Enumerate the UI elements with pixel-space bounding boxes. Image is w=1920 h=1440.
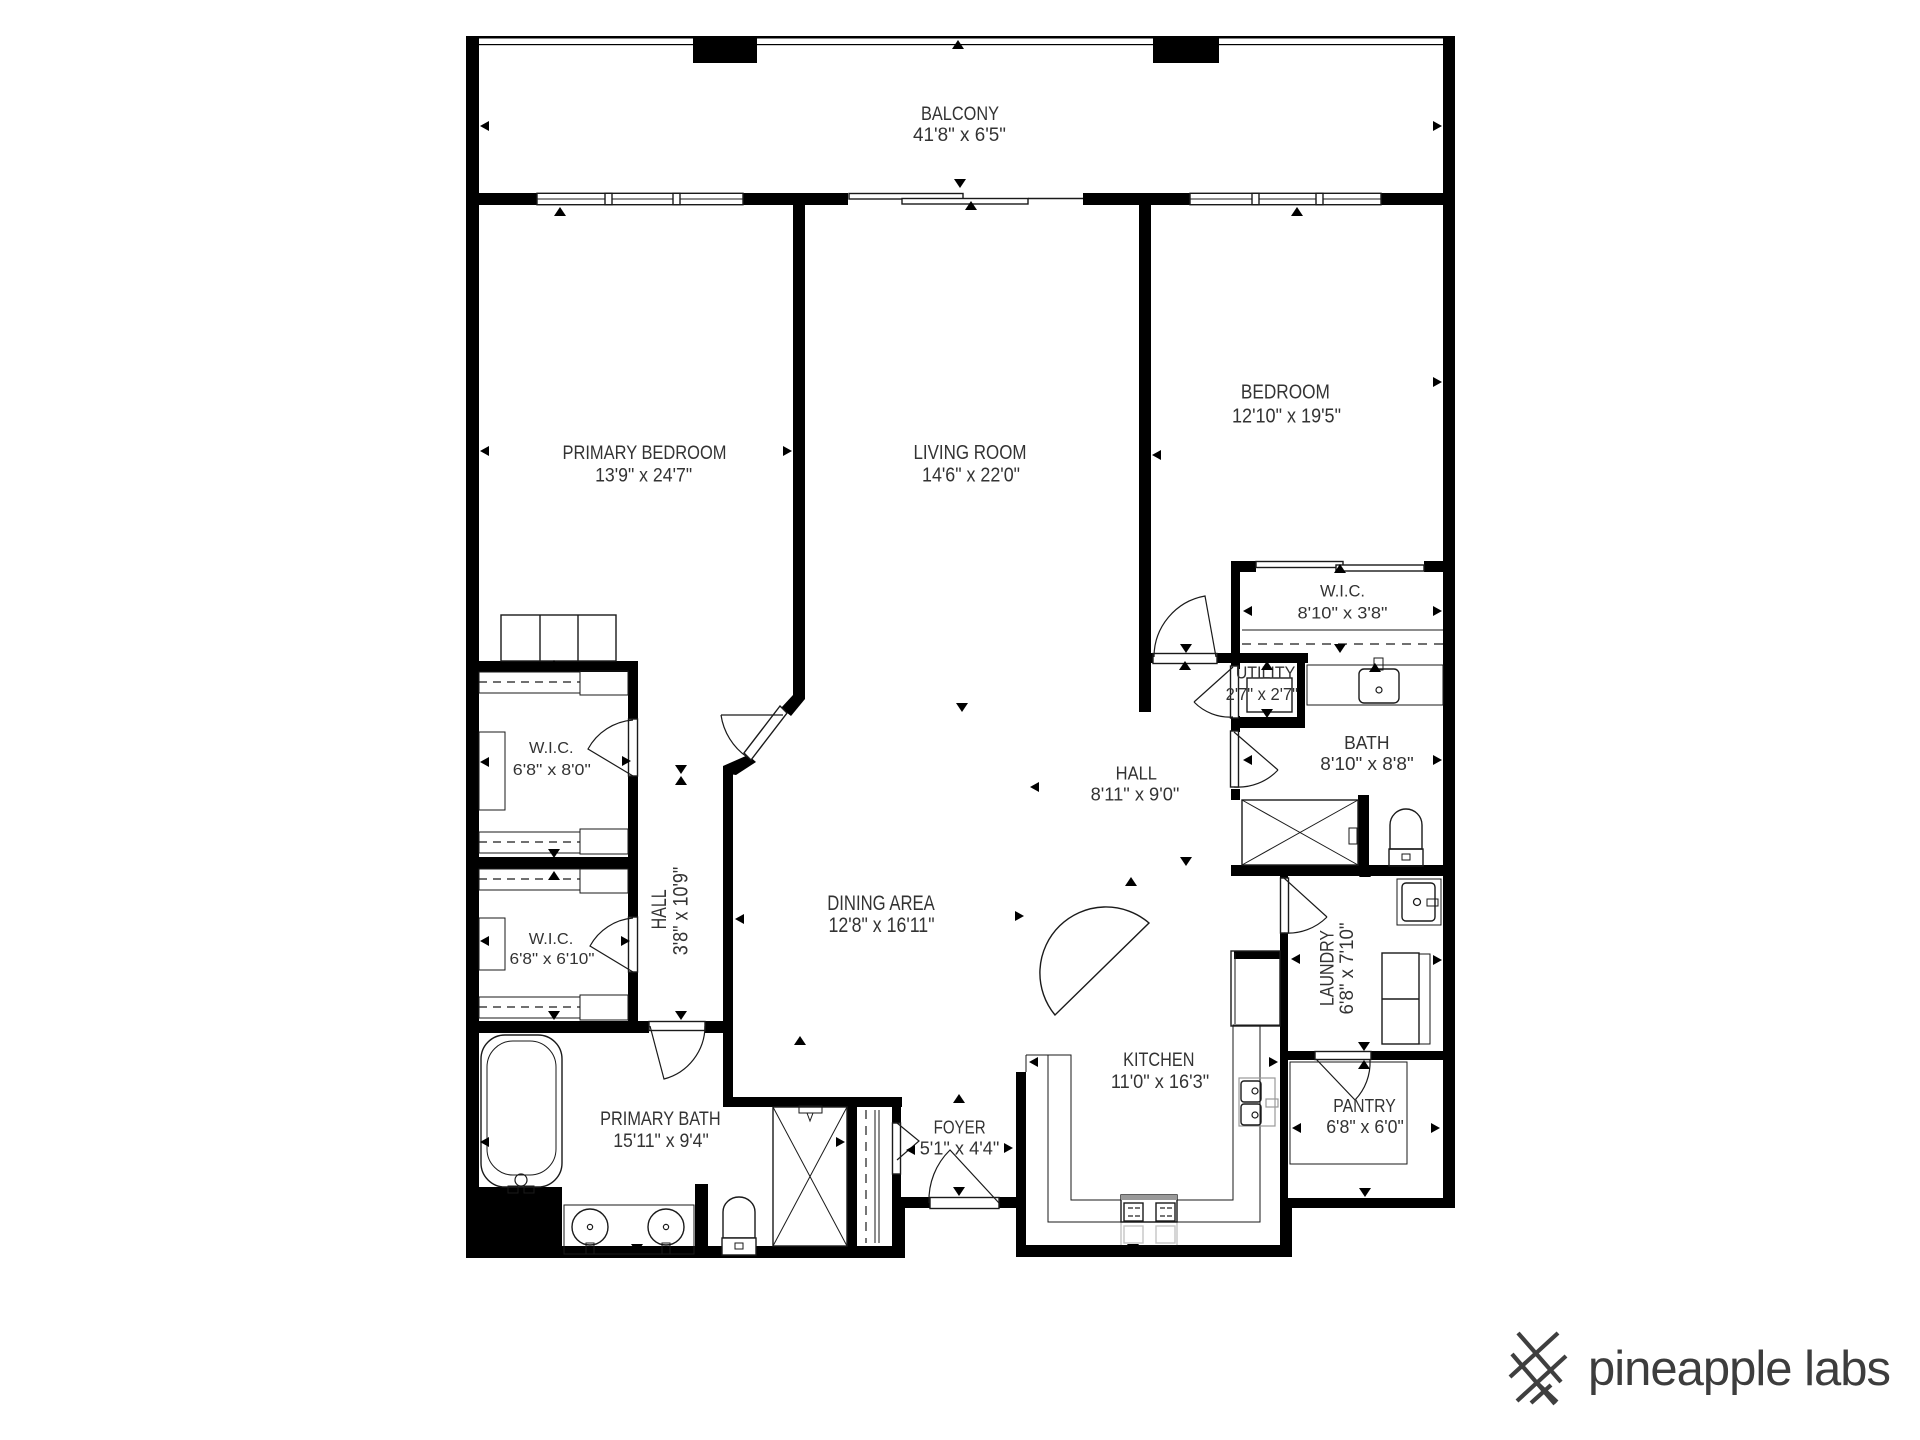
svg-text:11'0" x 16'3": 11'0" x 16'3" xyxy=(1111,1072,1209,1093)
svg-text:W.I.C.: W.I.C. xyxy=(1320,582,1365,601)
svg-text:14'6" x 22'0": 14'6" x 22'0" xyxy=(922,465,1020,487)
svg-text:12'10" x 19'5": 12'10" x 19'5" xyxy=(1232,406,1341,428)
svg-text:13'9" x 24'7": 13'9" x 24'7" xyxy=(595,466,692,487)
svg-text:8'10" x 8'8": 8'10" x 8'8" xyxy=(1320,753,1413,774)
svg-text:6'8" x 7'10": 6'8" x 7'10" xyxy=(1336,922,1358,1014)
svg-text:HALL: HALL xyxy=(648,889,671,929)
svg-text:BEDROOM: BEDROOM xyxy=(1241,382,1330,404)
svg-text:LIVING ROOM: LIVING ROOM xyxy=(914,442,1027,464)
svg-text:15'11" x 9'4": 15'11" x 9'4" xyxy=(613,1131,709,1152)
svg-text:6'8" x 8'0": 6'8" x 8'0" xyxy=(513,762,591,779)
svg-text:pineapple labs: pineapple labs xyxy=(1588,1342,1890,1396)
svg-text:PANTRY: PANTRY xyxy=(1333,1096,1396,1116)
svg-text:12'8" x 16'11": 12'8" x 16'11" xyxy=(829,914,935,937)
svg-text:8'11" x 9'0": 8'11" x 9'0" xyxy=(1091,783,1180,804)
svg-text:HALL: HALL xyxy=(1116,762,1157,783)
svg-text:BATH: BATH xyxy=(1344,732,1389,753)
svg-text:6'8" x 6'10": 6'8" x 6'10" xyxy=(510,951,595,968)
svg-text:2'7" x 2'7": 2'7" x 2'7" xyxy=(1226,684,1298,704)
svg-text:W.I.C.: W.I.C. xyxy=(529,931,574,948)
svg-text:41'8" x 6'5": 41'8" x 6'5" xyxy=(913,125,1006,146)
svg-text:5'1" x 4'4": 5'1" x 4'4" xyxy=(920,1138,1000,1159)
svg-text:KITCHEN: KITCHEN xyxy=(1123,1050,1194,1071)
svg-text:3'8" x 10'9": 3'8" x 10'9" xyxy=(670,867,693,956)
svg-text:PRIMARY BEDROOM: PRIMARY BEDROOM xyxy=(563,443,727,464)
svg-text:FOYER: FOYER xyxy=(934,1117,986,1138)
svg-text:8'10" x 3'8": 8'10" x 3'8" xyxy=(1298,604,1388,623)
svg-text:BALCONY: BALCONY xyxy=(921,104,999,125)
svg-text:6'8" x 6'0": 6'8" x 6'0" xyxy=(1326,1117,1404,1137)
svg-text:W.I.C.: W.I.C. xyxy=(529,740,574,757)
svg-text:PRIMARY BATH: PRIMARY BATH xyxy=(600,1109,721,1130)
svg-text:DINING AREA: DINING AREA xyxy=(827,892,935,915)
